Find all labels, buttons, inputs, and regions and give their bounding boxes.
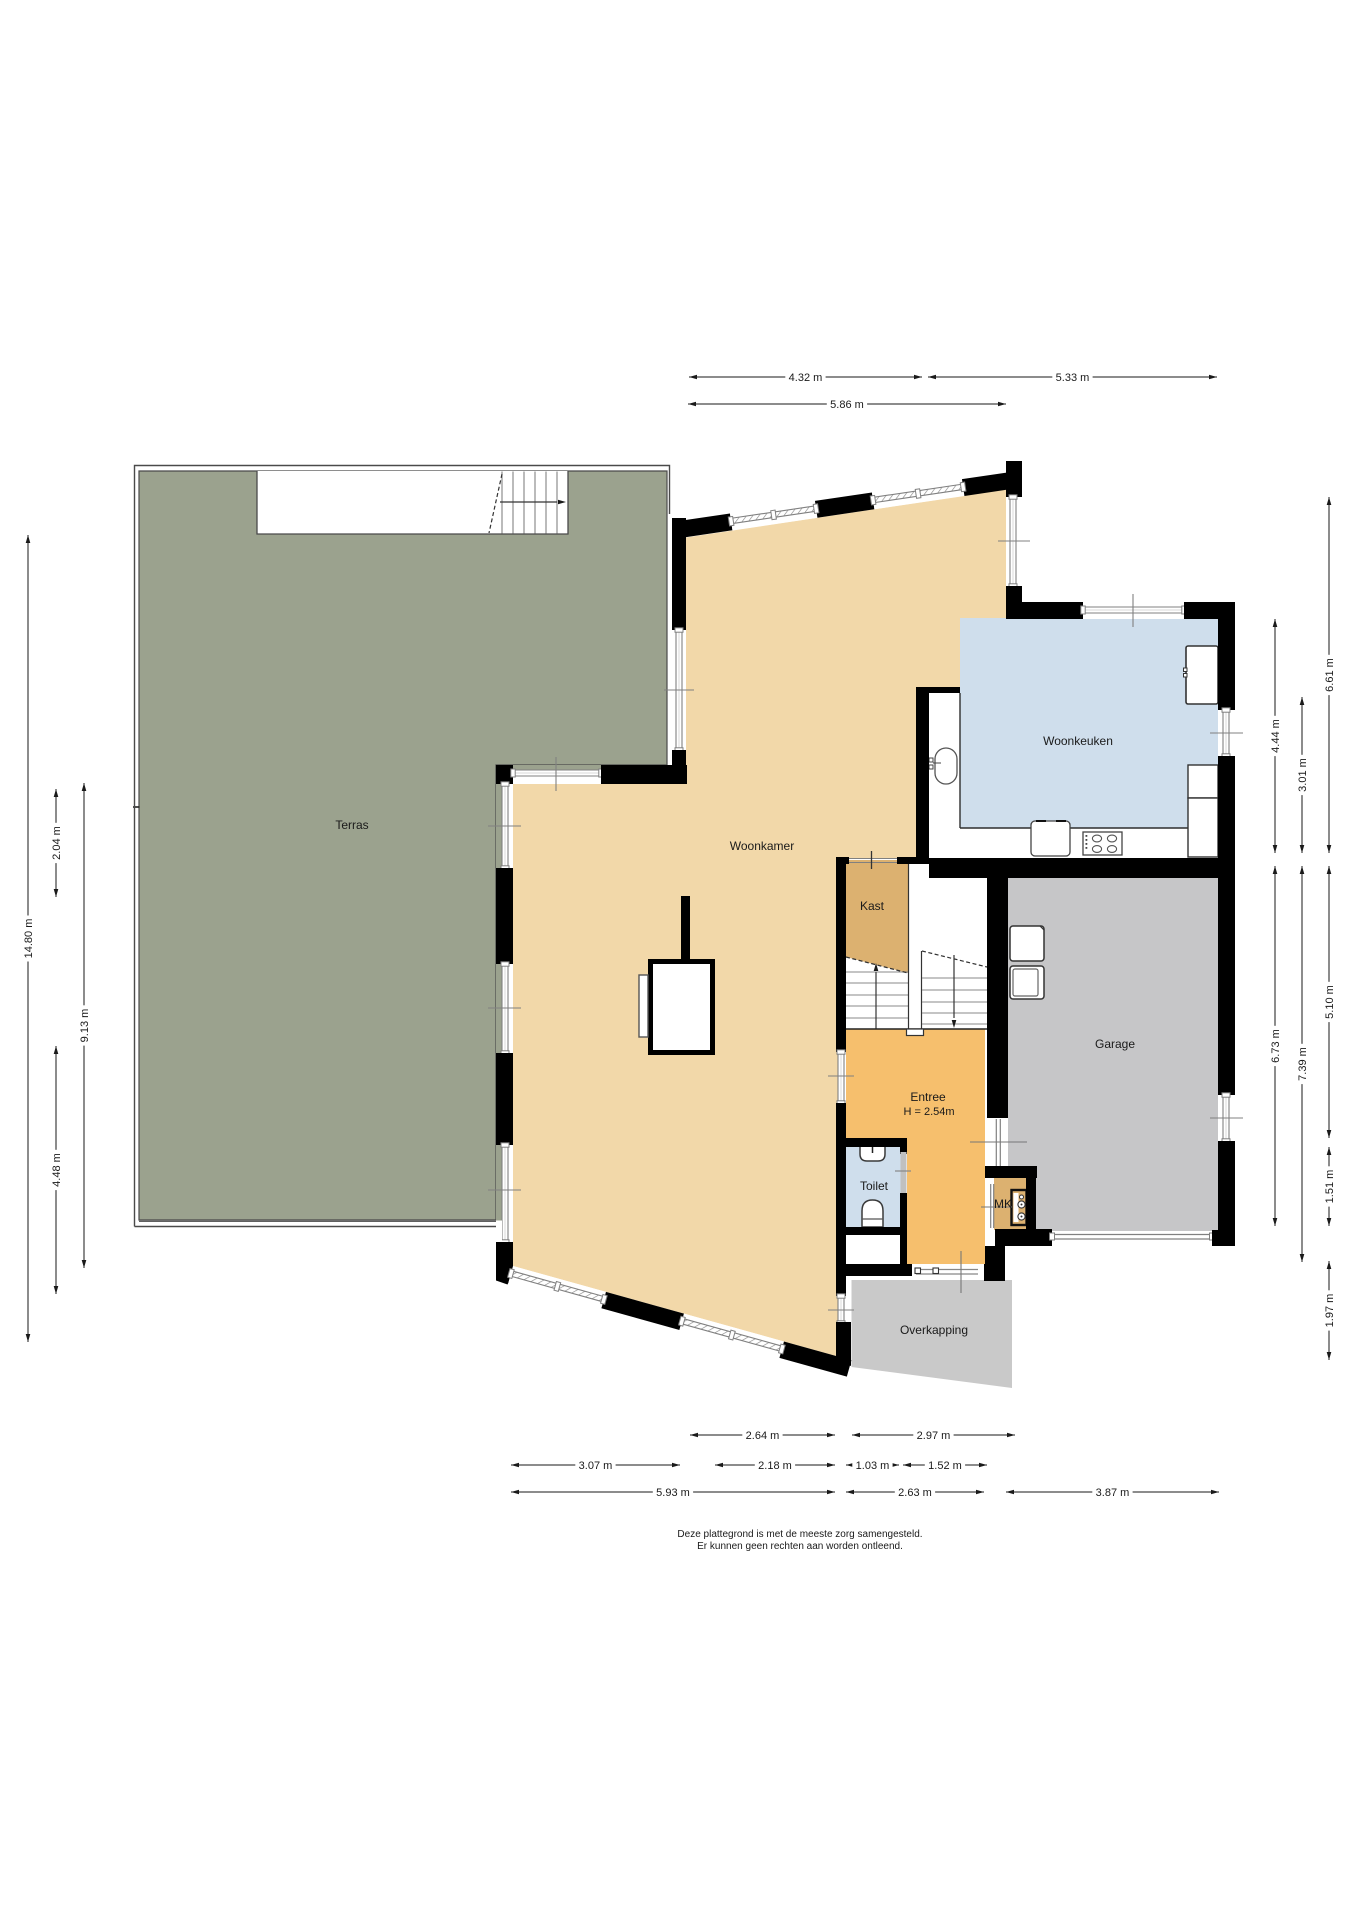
svg-text:Entree: Entree — [910, 1090, 946, 1104]
svg-text:Deze plattegrond is met de mee: Deze plattegrond is met de meeste zorg s… — [677, 1529, 922, 1540]
svg-text:6.61 m: 6.61 m — [1324, 658, 1336, 692]
svg-text:Er kunnen geen rechten aan wor: Er kunnen geen rechten aan worden ontlee… — [697, 1541, 903, 1552]
svg-text:3.07 m: 3.07 m — [579, 1460, 613, 1472]
svg-text:6.73 m: 6.73 m — [1270, 1029, 1282, 1063]
svg-text:Overkapping: Overkapping — [900, 1323, 968, 1337]
svg-text:Kast: Kast — [860, 899, 885, 913]
svg-text:Woonkeuken: Woonkeuken — [1043, 734, 1113, 748]
svg-text:Terras: Terras — [335, 818, 368, 832]
svg-text:2.04 m: 2.04 m — [51, 826, 63, 860]
svg-text:4.48 m: 4.48 m — [51, 1153, 63, 1187]
svg-text:4.32 m: 4.32 m — [789, 372, 823, 384]
svg-text:4.44 m: 4.44 m — [1270, 719, 1282, 753]
svg-text:2.97 m: 2.97 m — [917, 1430, 951, 1442]
svg-text:5.10 m: 5.10 m — [1324, 985, 1336, 1019]
svg-text:14.80 m: 14.80 m — [23, 919, 35, 959]
svg-text:5.86 m: 5.86 m — [830, 399, 864, 411]
svg-text:Garage: Garage — [1095, 1037, 1135, 1051]
svg-text:1.52 m: 1.52 m — [928, 1460, 962, 1472]
svg-text:3.01 m: 3.01 m — [1297, 758, 1309, 792]
svg-text:5.93 m: 5.93 m — [656, 1487, 690, 1499]
svg-text:H = 2.54m: H = 2.54m — [903, 1106, 954, 1118]
svg-text:1.51 m: 1.51 m — [1324, 1170, 1336, 1204]
svg-text:Toilet: Toilet — [860, 1179, 889, 1193]
svg-text:5.33 m: 5.33 m — [1056, 372, 1090, 384]
svg-text:2.63 m: 2.63 m — [898, 1487, 932, 1499]
svg-text:9.13 m: 9.13 m — [79, 1009, 91, 1043]
svg-text:1.03 m: 1.03 m — [856, 1460, 890, 1472]
svg-text:2.64 m: 2.64 m — [746, 1430, 780, 1442]
svg-text:3.87 m: 3.87 m — [1096, 1487, 1130, 1499]
svg-text:Woonkamer: Woonkamer — [730, 839, 794, 853]
svg-text:7.39 m: 7.39 m — [1297, 1047, 1309, 1081]
svg-text:MK: MK — [994, 1197, 1012, 1211]
svg-text:2.18 m: 2.18 m — [758, 1460, 792, 1472]
svg-text:1.97 m: 1.97 m — [1324, 1294, 1336, 1328]
